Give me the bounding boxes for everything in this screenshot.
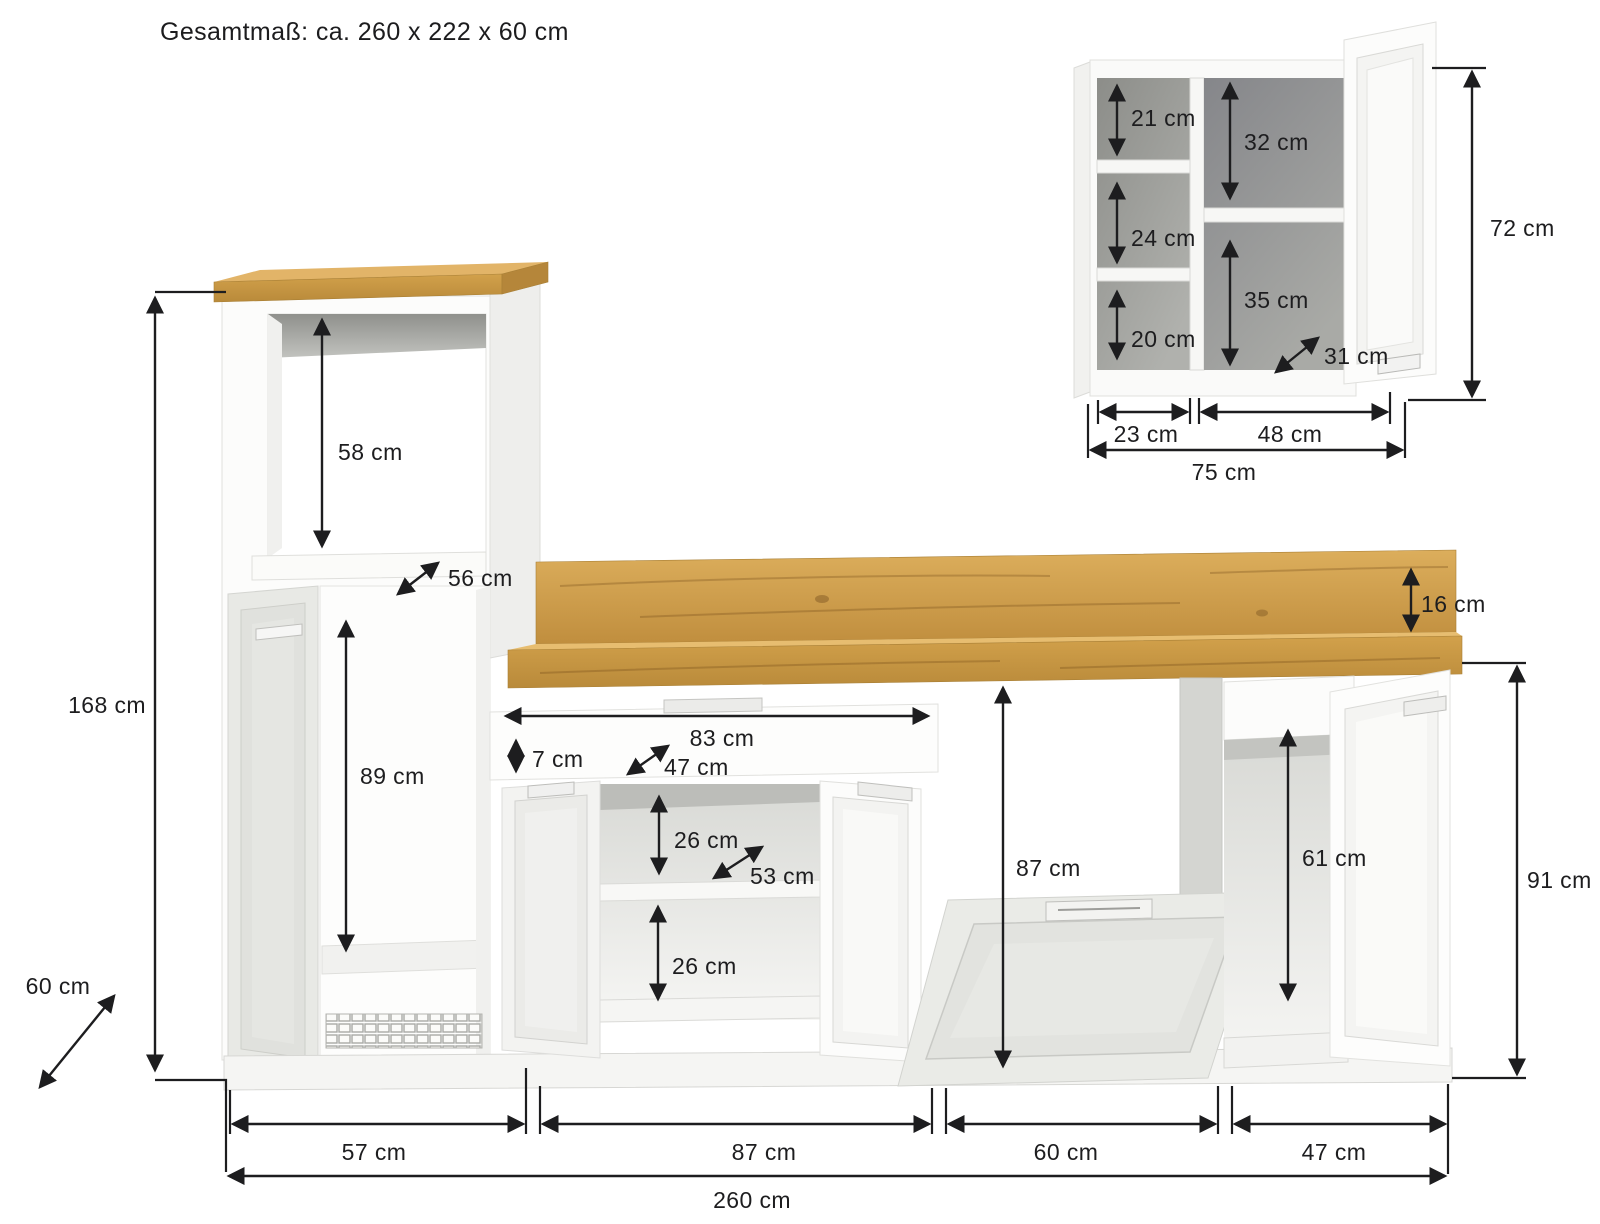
dim-87-height-label: 87 cm <box>1016 855 1081 881</box>
backsplash <box>536 550 1456 644</box>
dim-61-label: 61 cm <box>1302 845 1367 871</box>
dim-7-label: 7 cm <box>532 746 583 772</box>
tall-unit-open-door <box>228 586 318 1076</box>
cabinet-interior <box>600 784 820 1022</box>
dim-21-label: 21 cm <box>1131 105 1196 131</box>
wall-cabinet-open-door <box>1344 22 1436 384</box>
dim-47-width-label: 47 cm <box>1302 1139 1367 1165</box>
dim-260: 260 cm <box>229 1176 1445 1213</box>
dishwasher-front-panel <box>898 892 1268 1086</box>
dim-91: 91 cm <box>1452 663 1592 1078</box>
microwave-niche <box>268 314 486 558</box>
dim-72-label: 72 cm <box>1490 215 1555 241</box>
dim-56-label: 56 cm <box>448 565 513 591</box>
dim-60-depth: 60 cm <box>26 973 114 1087</box>
dim-16-label: 16 cm <box>1421 591 1486 617</box>
dim-47-width: 47 cm <box>1235 1124 1445 1165</box>
wall-cabinet-side-panel <box>1074 62 1090 398</box>
main-kitchen-view: 168 cm 60 cm 58 cm 56 cm 89 cm 83 cm 7 c… <box>26 262 1592 1213</box>
dim-87-width: 87 cm <box>543 1124 929 1165</box>
dim-83-label: 83 cm <box>690 725 755 751</box>
dim-23-label: 23 cm <box>1114 421 1179 447</box>
dim-32-label: 32 cm <box>1244 129 1309 155</box>
dim-20-label: 20 cm <box>1131 326 1196 352</box>
dim-24-label: 24 cm <box>1131 225 1196 251</box>
kitchen-dimension-diagram: Gesamtmaß: ca. 260 x 222 x 60 cm 21 cm 2… <box>0 0 1600 1224</box>
dim-35-label: 35 cm <box>1244 287 1309 313</box>
dim-47-inner-label: 47 cm <box>664 754 729 780</box>
tall-oven-unit <box>214 262 548 1076</box>
dim-60-depth-label: 60 cm <box>26 973 91 999</box>
page-title: Gesamtmaß: ca. 260 x 222 x 60 cm <box>160 18 569 46</box>
center-left-open-door <box>502 781 600 1058</box>
dim-89-label: 89 cm <box>360 763 425 789</box>
dim-23: 23 cm <box>1101 412 1187 447</box>
dim-260-label: 260 cm <box>713 1187 791 1213</box>
drawer-handle <box>664 698 762 713</box>
dim-168: 168 cm <box>68 292 226 1172</box>
wall-cabinet-shelf <box>1097 160 1190 173</box>
dim-57-label: 57 cm <box>342 1139 407 1165</box>
dim-75-label: 75 cm <box>1192 459 1257 485</box>
dim-91-label: 91 cm <box>1527 867 1592 893</box>
center-right-open-door <box>820 781 921 1062</box>
dim-60-width-label: 60 cm <box>1034 1139 1099 1165</box>
dim-26-lower-label: 26 cm <box>672 953 737 979</box>
dim-87-width-label: 87 cm <box>732 1139 797 1165</box>
countertop-support-post <box>1180 678 1222 918</box>
vent-grille <box>326 1014 482 1048</box>
dim-60-width: 60 cm <box>949 1124 1215 1165</box>
dim-26-upper-label: 26 cm <box>674 827 739 853</box>
dim-57-width: 57 cm <box>233 1124 523 1165</box>
dim-48-label: 48 cm <box>1258 421 1323 447</box>
dim-53-label: 53 cm <box>750 863 815 889</box>
wall-cabinet-shelf <box>1097 268 1190 281</box>
dim-48: 48 cm <box>1202 412 1387 447</box>
dim-168-label: 168 cm <box>68 692 146 718</box>
wall-cabinet-right-column <box>1204 78 1352 370</box>
dim-31-label: 31 cm <box>1324 343 1389 369</box>
dim-58-label: 58 cm <box>338 439 403 465</box>
countertop-and-backsplash <box>508 550 1462 688</box>
dim-75: 75 cm <box>1091 450 1402 485</box>
wall-cabinet-view: 21 cm 24 cm 20 cm 32 cm 35 cm 31 cm 72 c… <box>1074 22 1555 485</box>
wall-cabinet-shelf <box>1204 208 1352 222</box>
